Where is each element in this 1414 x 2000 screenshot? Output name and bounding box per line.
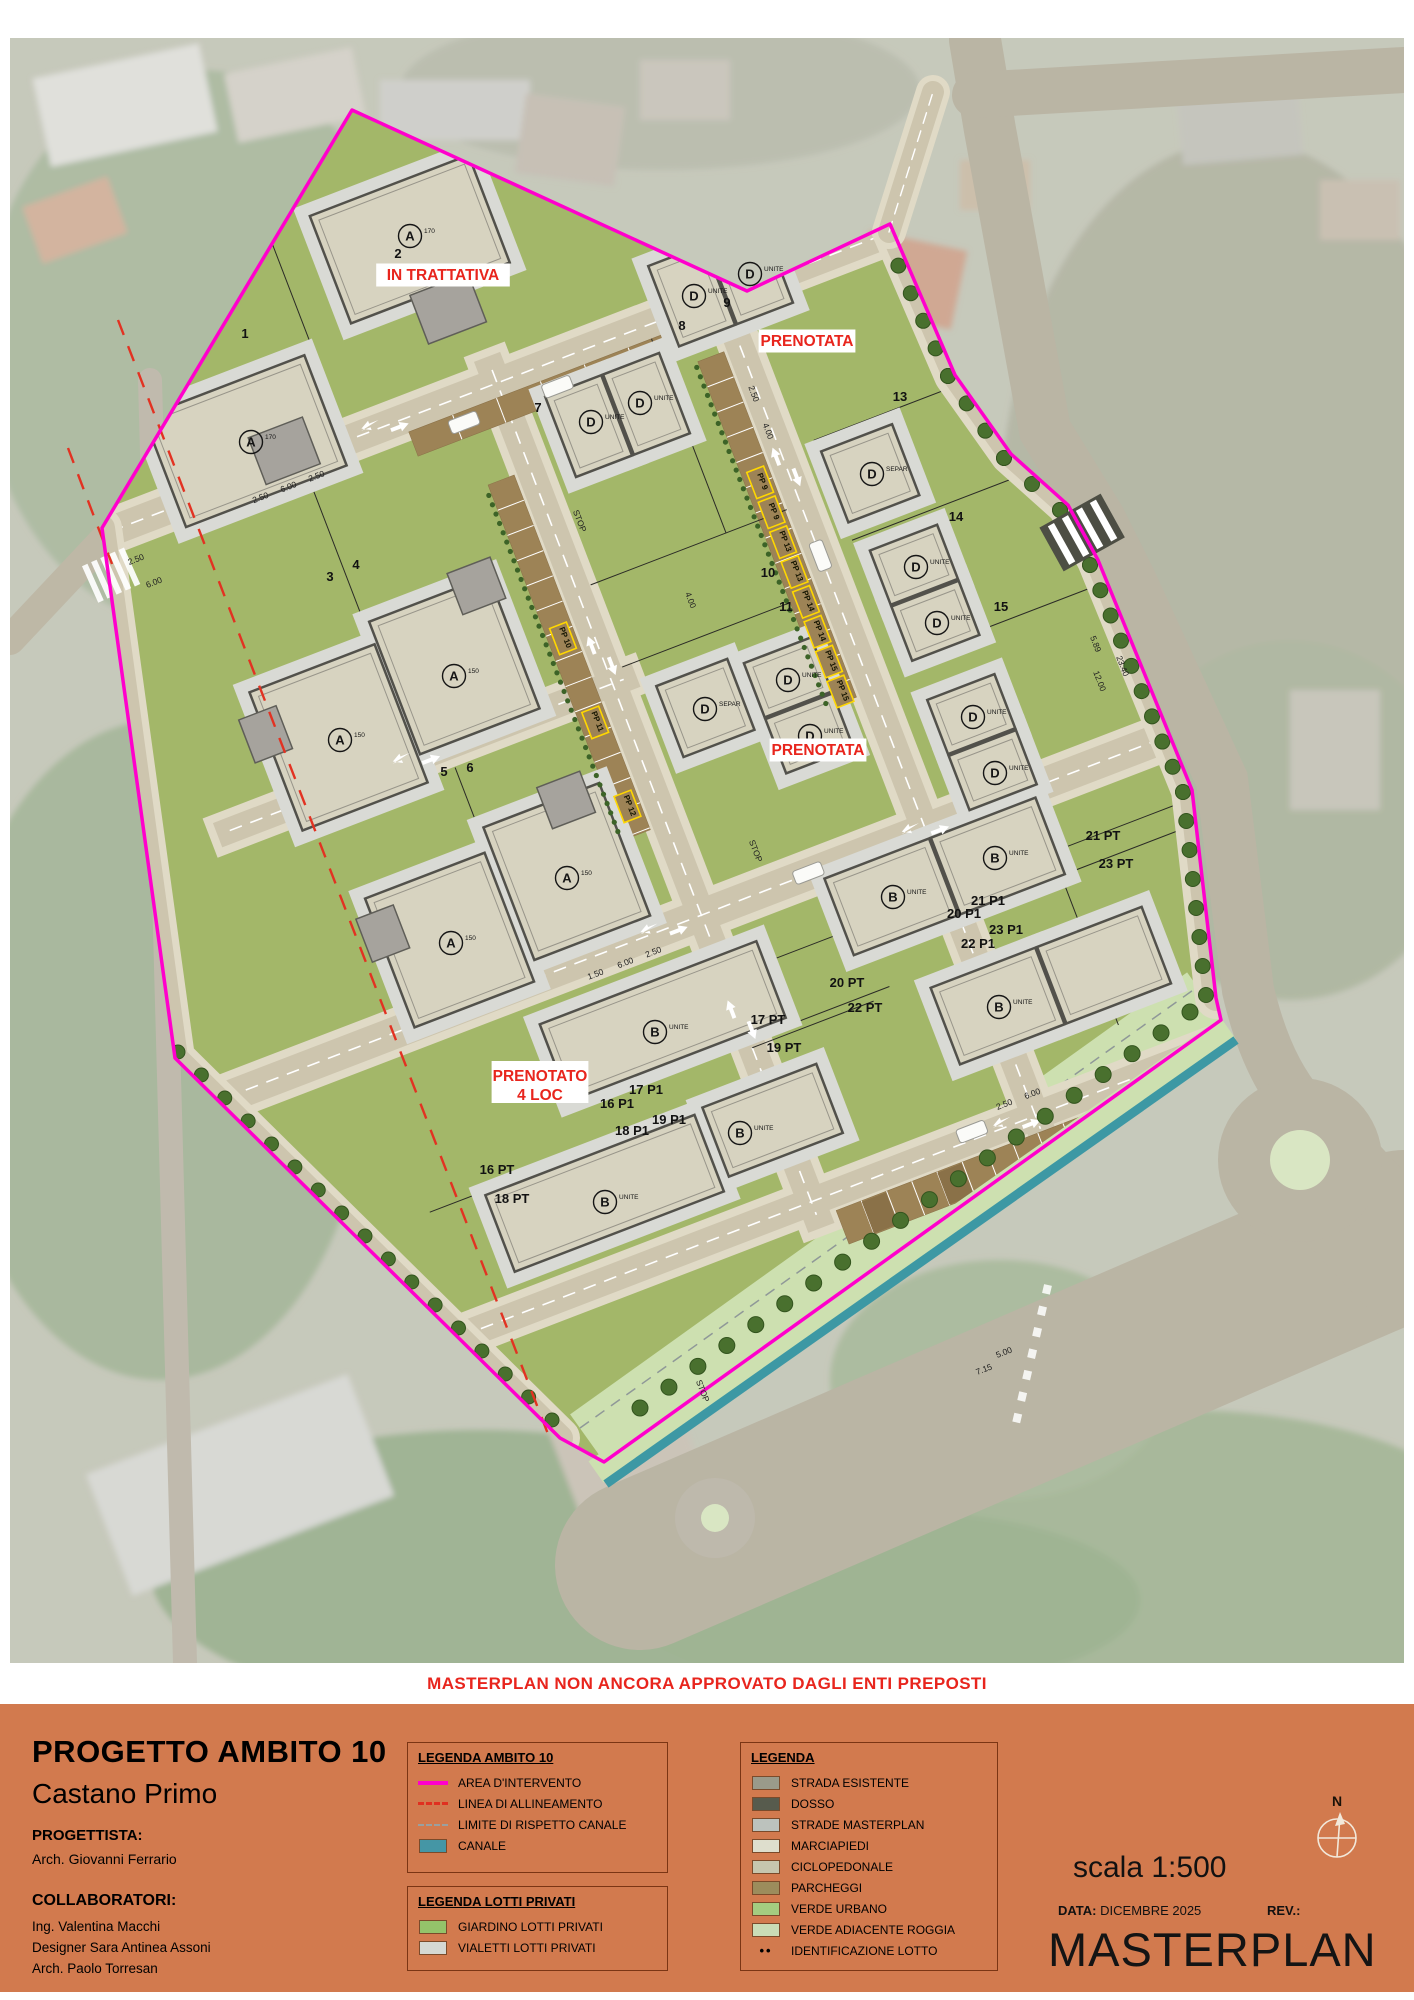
building-letter: D: [689, 289, 698, 304]
building-sub-label: UNITE: [1009, 850, 1029, 857]
building-letter: D: [911, 560, 920, 575]
color-swatch: [419, 1941, 447, 1955]
lot-number: 18 PT: [495, 1191, 530, 1206]
legend-ambito-title: LEGENDA AMBITO 10: [418, 1750, 657, 1765]
lot-number: 11: [779, 599, 793, 614]
legend-main-box: LEGENDA STRADA ESISTENTE DOSSO STRADE MA…: [740, 1742, 998, 1971]
rev-label: REV.:: [1267, 1903, 1300, 1918]
building-letter: D: [968, 710, 977, 725]
lot-number: 8: [678, 318, 685, 333]
legend-item: STRADA ESISTENTE: [751, 1772, 987, 1793]
collaborator: Designer Sara Antinea Assoni: [32, 1937, 211, 1958]
building-sub-label: UNITE: [669, 1024, 689, 1031]
building-sub-label: 150: [581, 870, 592, 877]
legend-item: GIARDINO LOTTI PRIVATI: [418, 1916, 657, 1937]
legend-item-label: CICLOPEDONALE: [791, 1860, 893, 1874]
legend-item-label: VIALETTI LOTTI PRIVATI: [458, 1941, 596, 1955]
date-row: DATA: DICEMBRE 2025: [1058, 1903, 1201, 1918]
color-swatch: [752, 1776, 780, 1790]
legend-item-label: AREA D'INTERVENTO: [458, 1776, 581, 1790]
masterplan-sheet: PP 9PP 9PP 13PP 13PP 14PP 14PP 15PP 15PP…: [0, 0, 1414, 2000]
lot-number: 18 P1: [615, 1123, 649, 1138]
building-sub-label: 170: [424, 228, 435, 235]
legend-item: LINEA DI ALLINEAMENTO: [418, 1793, 657, 1814]
legend-ambito-box: LEGENDA AMBITO 10 AREA D'INTERVENTO LINE…: [407, 1742, 668, 1873]
legend-item: LIMITE DI RISPETTO CANALE: [418, 1814, 657, 1835]
building-letter: A: [405, 229, 415, 244]
legend-item-label: GIARDINO LOTTI PRIVATI: [458, 1920, 603, 1934]
legend-item-label: STRADE MASTERPLAN: [791, 1818, 924, 1832]
status-label: IN TRATTATIVA: [387, 267, 500, 284]
building-sub-label: UNITE: [754, 1125, 774, 1132]
building-letter: B: [600, 1195, 609, 1210]
lot-id-dots-swatch: ••: [759, 1943, 772, 1958]
lot-number: 10: [761, 565, 775, 580]
lot-number: 19 PT: [767, 1040, 802, 1055]
building-letter: B: [990, 851, 999, 866]
building-letter: A: [335, 733, 345, 748]
building-letter: B: [650, 1025, 659, 1040]
legend-item-label: LIMITE DI RISPETTO CANALE: [458, 1818, 626, 1832]
color-swatch: [752, 1860, 780, 1874]
legend-item-label: VERDE URBANO: [791, 1902, 887, 1916]
building-sub-label: UNITE: [987, 709, 1007, 716]
lot-number: 16 P1: [600, 1096, 634, 1111]
building-letter: A: [449, 669, 459, 684]
building-letter: B: [994, 1000, 1003, 1015]
lot-number: 14: [949, 509, 964, 524]
project-city: Castano Primo: [32, 1778, 217, 1810]
building-sub-label: 170: [265, 434, 276, 441]
legend-item-label: VERDE ADIACENTE ROGGIA: [791, 1923, 955, 1937]
building-letter: D: [932, 616, 941, 631]
red-dash-swatch: [418, 1802, 448, 1805]
color-swatch: [752, 1881, 780, 1895]
building-sub-label: UNITE: [951, 615, 971, 622]
lot-number: 20 PT: [830, 975, 865, 990]
legend-item: VIALETTI LOTTI PRIVATI: [418, 1937, 657, 1958]
building-sub-label: UNITE: [708, 288, 728, 295]
legend-item-label: LINEA DI ALLINEAMENTO: [458, 1797, 603, 1811]
building-letter: D: [745, 267, 754, 282]
collaborator: Arch. Paolo Torresan: [32, 1958, 211, 1979]
lot-number: 15: [994, 599, 1008, 614]
legend-item: MARCIAPIEDI: [751, 1835, 987, 1856]
lot-number: 6: [466, 760, 473, 775]
building-sub-label: SEPAR: [886, 466, 908, 473]
building-letter: D: [867, 467, 876, 482]
legend-item-label: MARCIAPIEDI: [791, 1839, 869, 1853]
legend-item-label: IDENTIFICAZIONE LOTTO: [791, 1944, 937, 1958]
lot-number: 4: [352, 557, 360, 572]
building-letter: B: [735, 1126, 744, 1141]
building-sub-label: UNITE: [824, 728, 844, 735]
lot-number: 23 P1: [989, 922, 1023, 937]
status-label: PRENOTATO: [493, 1068, 588, 1085]
approval-banner: MASTERPLAN NON ANCORA APPROVATO DAGLI EN…: [0, 1663, 1414, 1704]
legend-item: VERDE ADIACENTE ROGGIA: [751, 1919, 987, 1940]
building-sub-label: UNITE: [1013, 999, 1033, 1006]
status-label: PRENOTATA: [772, 742, 865, 759]
magenta-line-swatch: [418, 1781, 448, 1785]
color-swatch: [419, 1920, 447, 1934]
date-value: DICEMBRE 2025: [1100, 1903, 1201, 1918]
building-sub-label: 150: [468, 668, 479, 675]
date-label: DATA:: [1058, 1903, 1097, 1918]
lot-number: 22 PT: [848, 1000, 883, 1015]
lot-number: 5: [440, 764, 447, 779]
legend-item-label: DOSSO: [791, 1797, 834, 1811]
building-letter: B: [888, 890, 897, 905]
north-arrow-icon: N: [1307, 1778, 1371, 1870]
building-letter: A: [446, 936, 456, 951]
lot-number: 3: [326, 569, 333, 584]
scale-label: scala 1:500: [1073, 1851, 1226, 1885]
lot-number: 2: [394, 246, 401, 261]
legend-item-label: CANALE: [458, 1839, 506, 1853]
building-sub-label: 150: [465, 935, 476, 942]
status-label-line2: 4 LOC: [517, 1087, 563, 1104]
building-sub-label: UNITE: [802, 672, 822, 679]
lot-number: 17 PT: [751, 1012, 786, 1027]
project-title: PROGETTO AMBITO 10: [32, 1734, 387, 1770]
building-letter: D: [990, 766, 999, 781]
lot-number: 13: [893, 389, 907, 404]
building-sub-label: 150: [354, 732, 365, 739]
legend-item: DOSSO: [751, 1793, 987, 1814]
building-letter: A: [246, 435, 256, 450]
lot-number: 21 PT: [1086, 828, 1121, 843]
lot-number: 1: [241, 326, 248, 341]
legend-item: VERDE URBANO: [751, 1898, 987, 1919]
progettista-name: Arch. Giovanni Ferrario: [32, 1851, 177, 1867]
lot-number: 20 P1: [947, 906, 981, 921]
color-swatch: [752, 1902, 780, 1916]
masterplan-drawing: PP 9PP 9PP 13PP 13PP 14PP 14PP 15PP 15PP…: [10, 38, 1404, 1663]
lot-number: 16 PT: [480, 1162, 515, 1177]
building-sub-label: UNITE: [1009, 765, 1029, 772]
collaboratori-label: COLLABORATORI:: [32, 1892, 176, 1910]
legend-item: STRADE MASTERPLAN: [751, 1814, 987, 1835]
color-swatch: [419, 1839, 447, 1853]
color-swatch: [752, 1923, 780, 1937]
color-swatch: [752, 1797, 780, 1811]
lot-number: 19 P1: [652, 1112, 686, 1127]
color-swatch: [752, 1839, 780, 1853]
building-letter: D: [635, 396, 644, 411]
status-label: PRENOTATA: [761, 333, 854, 350]
building-sub-label: UNITE: [654, 395, 674, 402]
lot-number: 17 P1: [629, 1082, 663, 1097]
building-letter: A: [562, 871, 572, 886]
legend-lotti-title: LEGENDA LOTTI PRIVATI: [418, 1894, 657, 1909]
building-letter: D: [783, 673, 792, 688]
svg-text:N: N: [1332, 1793, 1342, 1809]
legend-main-title: LEGENDA: [751, 1750, 987, 1765]
collaborator: Ing. Valentina Macchi: [32, 1916, 211, 1937]
legend-item: CICLOPEDONALE: [751, 1856, 987, 1877]
lot-number: 7: [534, 400, 541, 415]
site-plan-map: PP 9PP 9PP 13PP 13PP 14PP 14PP 15PP 15PP…: [10, 38, 1404, 1663]
document-title: MASTERPLAN: [1048, 1922, 1377, 1977]
building-sub-label: SEPAR: [719, 701, 741, 708]
legend-item: PARCHEGGI: [751, 1877, 987, 1898]
legend-item: AREA D'INTERVENTO: [418, 1772, 657, 1793]
building-sub-label: UNITE: [619, 1194, 639, 1201]
building-sub-label: UNITE: [764, 266, 784, 273]
building-letter: D: [700, 702, 709, 717]
approval-banner-text: MASTERPLAN NON ANCORA APPROVATO DAGLI EN…: [427, 1674, 987, 1694]
progettista-label: PROGETTISTA:: [32, 1827, 143, 1844]
lot-number: 23 PT: [1099, 856, 1134, 871]
legend-item: CANALE: [418, 1835, 657, 1856]
building-sub-label: UNITE: [907, 889, 927, 896]
building-sub-label: UNITE: [605, 414, 625, 421]
gray-dash-swatch: [418, 1824, 448, 1826]
color-swatch: [752, 1818, 780, 1832]
legend-item-label: STRADA ESISTENTE: [791, 1776, 909, 1790]
building-letter: D: [586, 415, 595, 430]
legend-item: •• IDENTIFICAZIONE LOTTO: [751, 1940, 987, 1961]
legend-lotti-box: LEGENDA LOTTI PRIVATI GIARDINO LOTTI PRI…: [407, 1886, 668, 1971]
building-sub-label: UNITE: [930, 559, 950, 566]
collaboratori-list: Ing. Valentina MacchiDesigner Sara Antin…: [32, 1916, 211, 1979]
lot-number: 22 P1: [961, 936, 995, 951]
legend-item-label: PARCHEGGI: [791, 1881, 862, 1895]
lot-number: 9: [723, 295, 730, 310]
